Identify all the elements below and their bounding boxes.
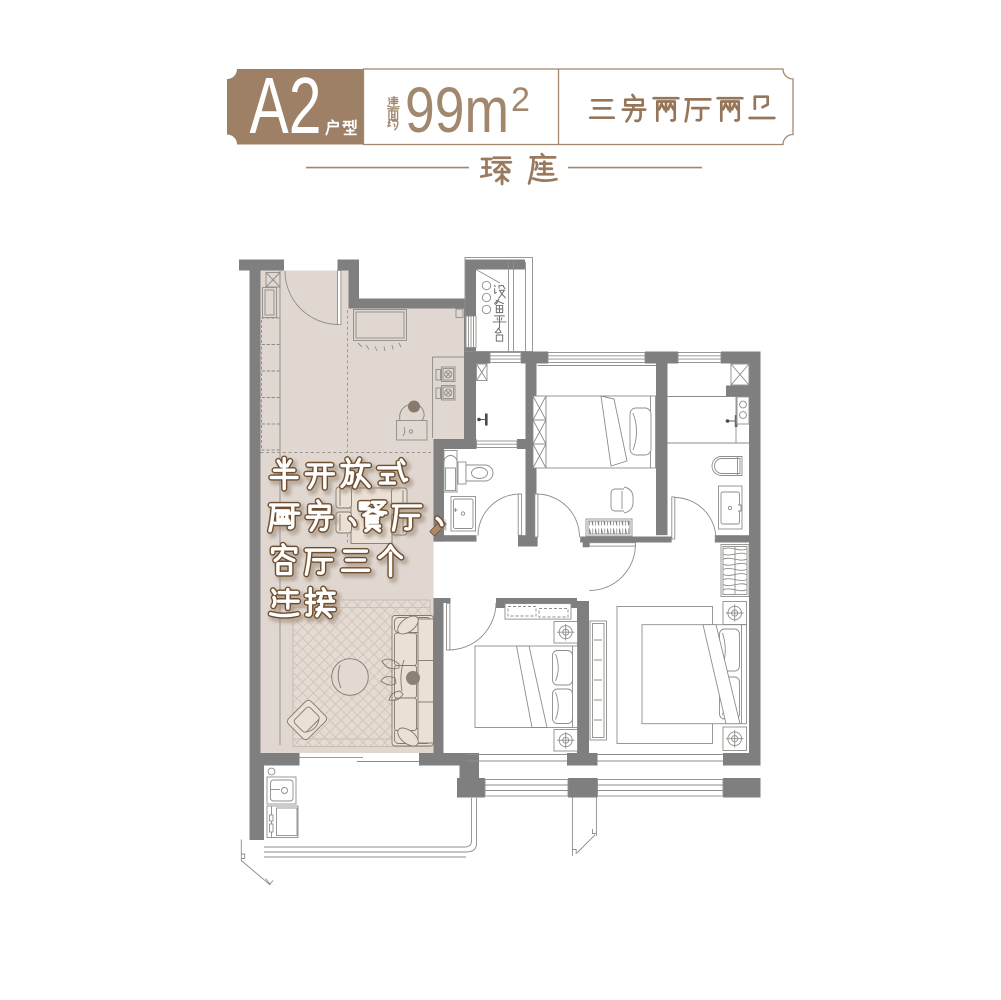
- svg-text:A2: A2: [250, 61, 322, 150]
- svg-text:99m: 99m: [405, 74, 509, 146]
- svg-text:2: 2: [511, 81, 530, 119]
